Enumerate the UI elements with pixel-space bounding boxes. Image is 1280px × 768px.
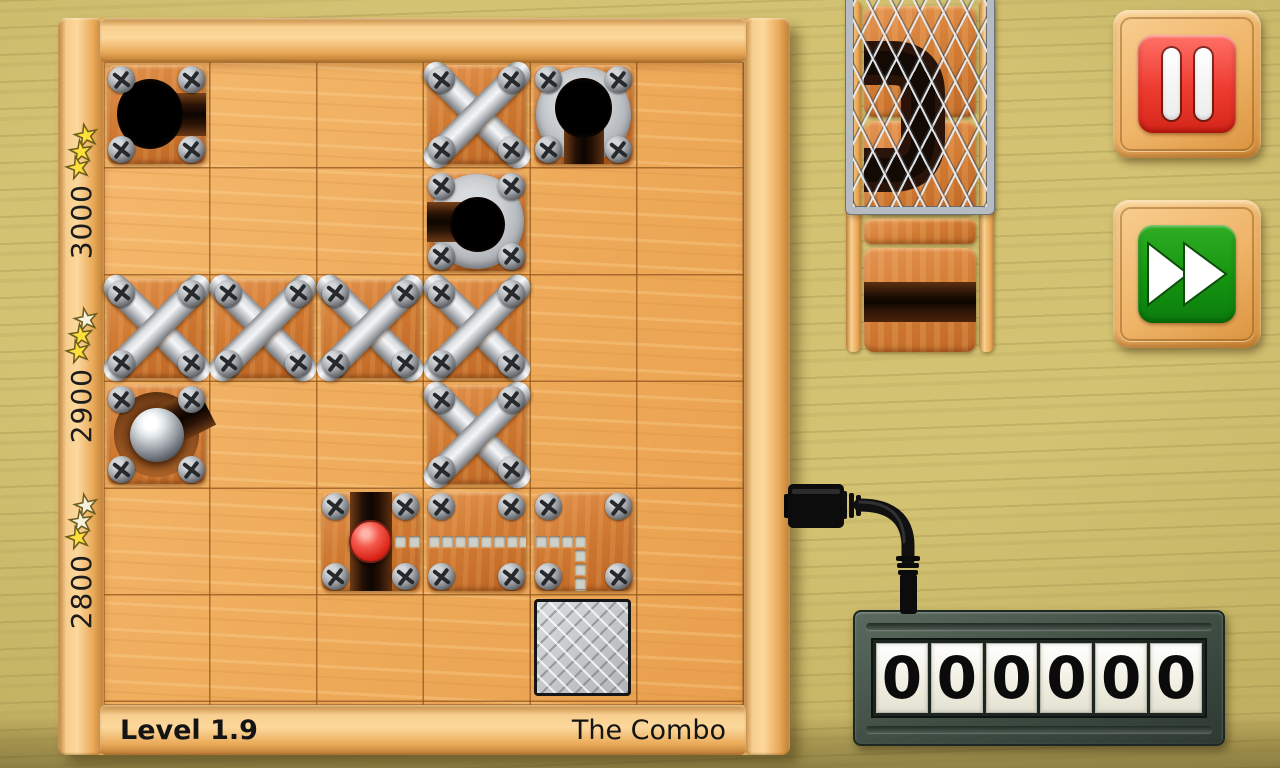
tile-cross-brace [107, 279, 206, 378]
queued-piece-edge [864, 219, 976, 244]
board-footer: Level 1.9 The Combo [100, 705, 746, 755]
counter-digits: 000000 [871, 638, 1207, 718]
star-filled-icon: ★ [63, 523, 94, 551]
red-button[interactable] [349, 520, 392, 563]
path-dot [575, 589, 586, 591]
path-dot [562, 536, 573, 547]
fast-forward-button[interactable] [1113, 200, 1261, 348]
threshold-value: 2900 [65, 368, 98, 443]
path-dot [442, 536, 453, 547]
path-dot [395, 536, 406, 547]
screw-icon [285, 350, 312, 377]
score-threshold: ★★★3000 [59, 124, 103, 259]
threshold-value: 3000 [65, 184, 98, 259]
screw-icon [428, 456, 455, 483]
screw-icon [498, 173, 525, 200]
star-filled-icon: ★ [63, 337, 94, 365]
screw-icon [498, 563, 525, 590]
tile-cross-brace [427, 279, 526, 378]
screw-icon [215, 280, 242, 307]
screw-icon [108, 280, 135, 307]
pause-button[interactable] [1113, 10, 1261, 158]
screw-icon [428, 493, 455, 520]
board-frame-top [100, 18, 746, 62]
tile-cross-brace [214, 279, 313, 378]
tile-dotted-path-horizontal[interactable] [427, 492, 526, 591]
screw-icon [428, 243, 455, 270]
board-frame-right [744, 18, 790, 755]
star-filled-icon: ★ [63, 153, 94, 181]
path-dot [494, 536, 505, 547]
screw-icon [108, 136, 135, 163]
fast-forward-icon [1138, 225, 1236, 323]
counter-digit: 0 [1150, 643, 1202, 713]
usb-cable [770, 468, 940, 618]
screw-icon [428, 563, 455, 590]
screw-icon [535, 136, 562, 163]
score-threshold: ★★★2900 [59, 308, 103, 443]
screw-icon [178, 66, 205, 93]
pause-icon [1138, 35, 1236, 133]
screw-icon [322, 280, 349, 307]
path-dot [455, 536, 466, 547]
path-dot [507, 536, 518, 547]
counter-digit: 0 [986, 643, 1038, 713]
level-label: Level 1.9 [120, 715, 258, 746]
path-dot [549, 536, 560, 547]
screw-icon [322, 563, 349, 590]
counter-digit: 0 [931, 643, 983, 713]
counter-digit: 0 [876, 643, 928, 713]
tile-metal-plate [534, 599, 631, 696]
tile-button-pipe[interactable] [321, 492, 420, 591]
screw-icon [392, 493, 419, 520]
score-counter: 000000 [853, 610, 1225, 746]
tile-cross-brace [321, 279, 420, 378]
screw-icon [392, 563, 419, 590]
tile-cross-brace [427, 385, 526, 484]
next-piece[interactable] [864, 248, 976, 352]
screw-icon [535, 66, 562, 93]
screw-icon [108, 66, 135, 93]
screw-icon [498, 243, 525, 270]
tile-marble-cup[interactable] [107, 385, 206, 484]
screw-icon [322, 350, 349, 377]
screw-icon [428, 280, 455, 307]
screw-icon [605, 493, 632, 520]
screw-icon [108, 456, 135, 483]
screw-icon [498, 350, 525, 377]
threshold-value: 2800 [65, 554, 98, 629]
tile-dotted-path-turn-down[interactable] [534, 492, 633, 591]
screw-icon [392, 280, 419, 307]
tile-funnel-pipe-down[interactable] [534, 65, 633, 164]
tile-funnel-pipe-left[interactable] [427, 172, 526, 271]
game-screen: Level 1.9 The Combo ★★★3000★★★2900★★★280… [0, 0, 1280, 768]
path-dot [575, 550, 586, 561]
path-dot [519, 536, 526, 547]
screw-icon [498, 386, 525, 413]
screw-icon [178, 350, 205, 377]
screw-icon [605, 136, 632, 163]
path-dot [481, 536, 492, 547]
screw-icon [535, 493, 562, 520]
path-dot [468, 536, 479, 547]
screw-icon [108, 350, 135, 377]
screw-icon [178, 456, 205, 483]
path-dot [409, 536, 420, 547]
score-threshold: ★★★2800 [59, 494, 103, 629]
screw-icon [605, 66, 632, 93]
screw-icon [605, 563, 632, 590]
level-name: The Combo [572, 715, 726, 746]
screw-icon [498, 493, 525, 520]
piece-cage [846, 0, 994, 214]
counter-groove-top [866, 623, 1212, 630]
pipe-hole [555, 78, 612, 138]
screw-icon [322, 493, 349, 520]
screw-icon [178, 280, 205, 307]
counter-digit: 0 [1095, 643, 1147, 713]
path-dot [575, 578, 586, 589]
path-dot [575, 564, 586, 575]
screw-icon [392, 350, 419, 377]
chain-link-mesh-icon [853, 0, 987, 207]
screw-icon [428, 350, 455, 377]
counter-groove-bottom [866, 726, 1212, 733]
screw-icon [498, 280, 525, 307]
counter-digit: 0 [1040, 643, 1092, 713]
marble [130, 408, 184, 462]
pipe-hole [450, 197, 505, 252]
path-dot [575, 536, 586, 547]
path-dot [536, 536, 547, 547]
tile-cross-brace [427, 65, 526, 164]
screw-icon [428, 173, 455, 200]
screw-icon [178, 136, 205, 163]
path-dot [429, 536, 440, 547]
screw-icon [285, 280, 312, 307]
screw-icon [535, 563, 562, 590]
straight-pipe-shape [864, 282, 976, 322]
screw-icon [215, 350, 242, 377]
tile-pipe-end-right[interactable] [107, 65, 206, 164]
